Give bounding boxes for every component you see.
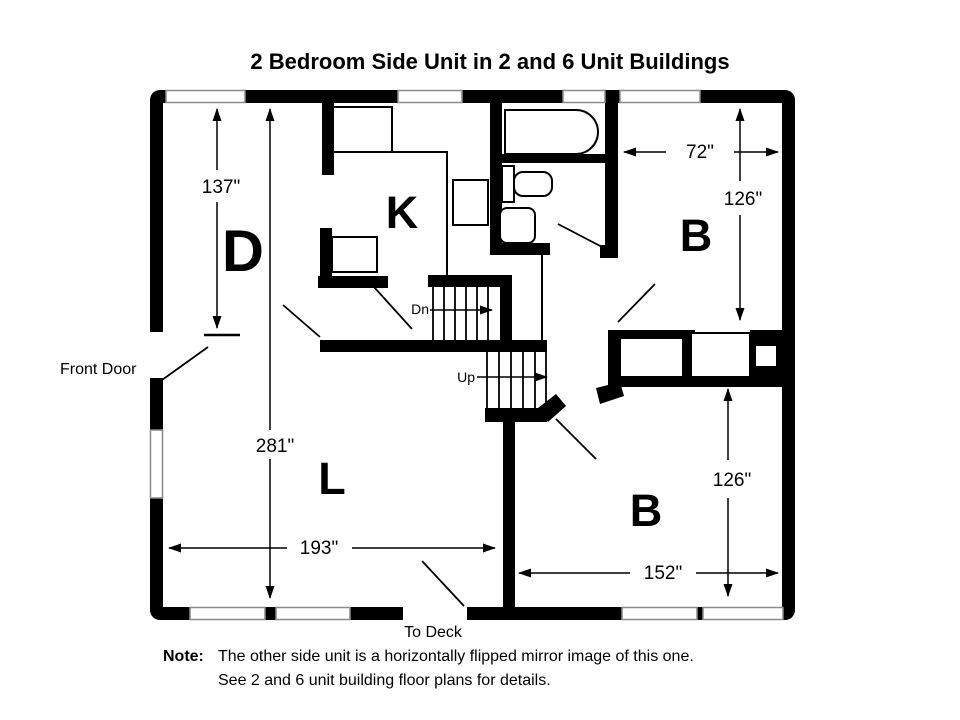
dim-label-bedroom-upper-length: 126" (724, 189, 762, 210)
wall-upstairs-bottom (485, 408, 547, 422)
dim-label-living-width: 193" (300, 538, 338, 559)
bathtub (505, 110, 598, 154)
wall-stairwell-right (500, 275, 512, 352)
front-door-opening (147, 332, 166, 378)
window-bottom-bedroom-1 (622, 608, 697, 620)
deck-door-opening (403, 604, 467, 624)
note-line-2: See 2 and 6 unit building floor plans fo… (218, 672, 551, 689)
stairs-down-label: Dn (411, 301, 429, 317)
wall-living-bedroom (503, 412, 515, 607)
note-line-1: The other side unit is a horizontally fl… (218, 648, 694, 665)
wall-kitchen-closet-bottom (318, 276, 388, 288)
dim-label-bedroom-upper-width: 72" (686, 142, 714, 163)
window-bottom-bedroom-2 (703, 608, 783, 620)
dim-label-dining-length: 137" (202, 177, 240, 198)
toilet-tank (502, 166, 514, 202)
dim-label-bedroom-lower-width: 152" (644, 563, 682, 584)
window-top-bath (563, 91, 605, 103)
bath-sink (500, 208, 535, 243)
stairs-up-label: Up (457, 369, 475, 385)
kitchen-fridge (453, 180, 488, 225)
room-label-bedroom-upper: B (680, 210, 713, 261)
window-bottom-living-1 (190, 608, 265, 620)
wall-closet-bottom (618, 377, 782, 387)
kitchen-sink-counter (332, 237, 377, 272)
room-label-living: L (318, 453, 346, 504)
room-label-dining: D (222, 219, 264, 284)
closet-compartment-right (691, 333, 750, 377)
window-top-bedroom (620, 91, 700, 103)
closet-chase-opening (756, 346, 776, 366)
wall-stairwell-top (428, 275, 512, 287)
wall-bath-bottom (490, 243, 550, 255)
toilet-bowl (514, 172, 552, 196)
wall-hall-living (320, 340, 547, 352)
window-top-kitchen (398, 91, 462, 103)
floor-plan-drawing: 2 Bedroom Side Unit in 2 and 6 Unit Buil… (0, 0, 960, 720)
window-left-living (151, 430, 163, 498)
wall-tub-front (502, 154, 605, 163)
to-deck-label: To Deck (404, 624, 463, 641)
floor-plan-page: 2 Bedroom Side Unit in 2 and 6 Unit Buil… (0, 0, 960, 720)
dim-label-unit-length: 281" (256, 436, 294, 457)
page-title: 2 Bedroom Side Unit in 2 and 6 Unit Buil… (250, 49, 729, 74)
note-prefix: Note: (163, 648, 204, 665)
wall-closet-divider (683, 333, 691, 377)
room-label-kitchen: K (386, 187, 419, 238)
front-door-label: Front Door (60, 361, 137, 378)
window-bottom-living-2 (276, 608, 350, 620)
dim-label-bedroom-lower-length: 126" (713, 470, 751, 491)
window-top-dining (166, 91, 245, 103)
closet-compartment-left (620, 338, 683, 377)
room-label-bedroom-lower: B (630, 485, 663, 536)
wall-closet-top (608, 330, 695, 338)
wall-bath-bedroom (605, 103, 618, 250)
kitchen-stove (333, 107, 392, 152)
